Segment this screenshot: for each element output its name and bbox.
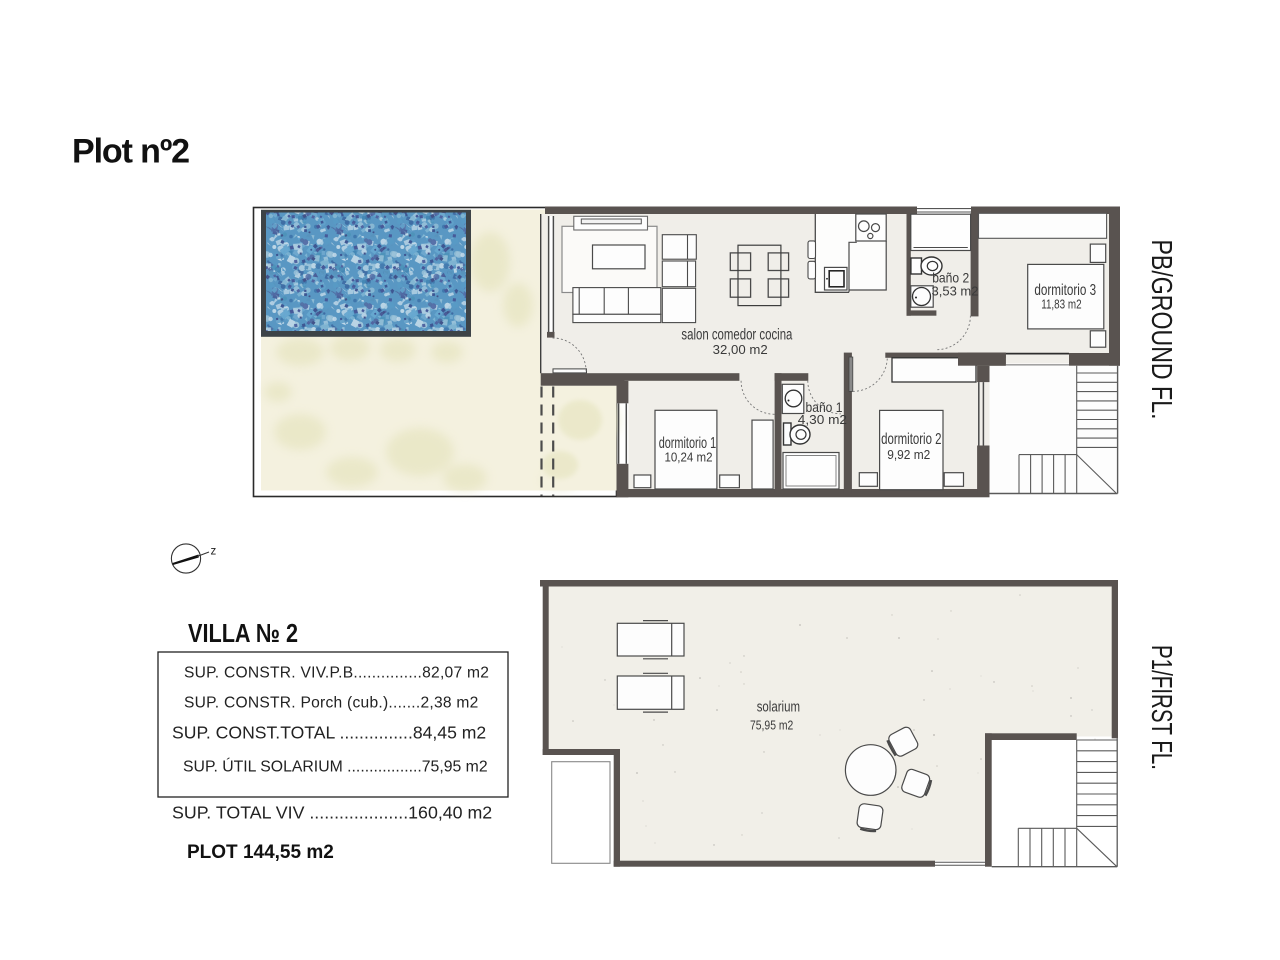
svg-text:10,24 m2: 10,24 m2 [665,451,713,465]
svg-text:dormitorio 1: dormitorio 1 [659,435,717,452]
svg-text:SUP. ÚTIL SOLARIUM ...........: SUP. ÚTIL SOLARIUM .................75,9… [183,757,488,776]
svg-text:P1/FIRST FL.: P1/FIRST FL. [1145,645,1177,770]
svg-text:75,95 m2: 75,95 m2 [750,718,793,732]
svg-text:salon comedor cocina: salon comedor cocina [681,327,792,344]
svg-text:SUP. CONST.TOTAL .............: SUP. CONST.TOTAL ...............84,45 m2 [172,723,486,743]
svg-text:PB/GROUND FL.: PB/GROUND FL. [1145,240,1177,420]
svg-text:dormitorio 3: dormitorio 3 [1034,282,1096,299]
svg-text:SUP. TOTAL VIV ...............: SUP. TOTAL VIV ....................160,4… [172,803,492,823]
svg-text:baño 2: baño 2 [932,270,969,286]
svg-text:PLOT 144,55 m2: PLOT 144,55 m2 [187,842,334,863]
svg-text:SUP. CONSTR. Porch (cub.).....: SUP. CONSTR. Porch (cub.).......2,38 m2 [184,695,479,712]
svg-text:9,92 m2: 9,92 m2 [887,448,930,462]
svg-text:32,00 m2: 32,00 m2 [713,343,768,357]
svg-text:SUP. CONSTR. VIV.P.B..........: SUP. CONSTR. VIV.P.B...............82,07… [184,665,489,682]
svg-text:solarium: solarium [757,700,800,716]
svg-text:11,83 m2: 11,83 m2 [1041,298,1081,312]
svg-text:3,53 m2: 3,53 m2 [932,285,979,299]
svg-text:dormitorio 2: dormitorio 2 [881,431,941,448]
svg-text:VILLA № 2: VILLA № 2 [188,618,298,648]
svg-text:4,30 m2: 4,30 m2 [798,413,847,427]
svg-text:Plot nº2: Plot nº2 [72,133,189,171]
svg-text:z: z [211,546,217,558]
